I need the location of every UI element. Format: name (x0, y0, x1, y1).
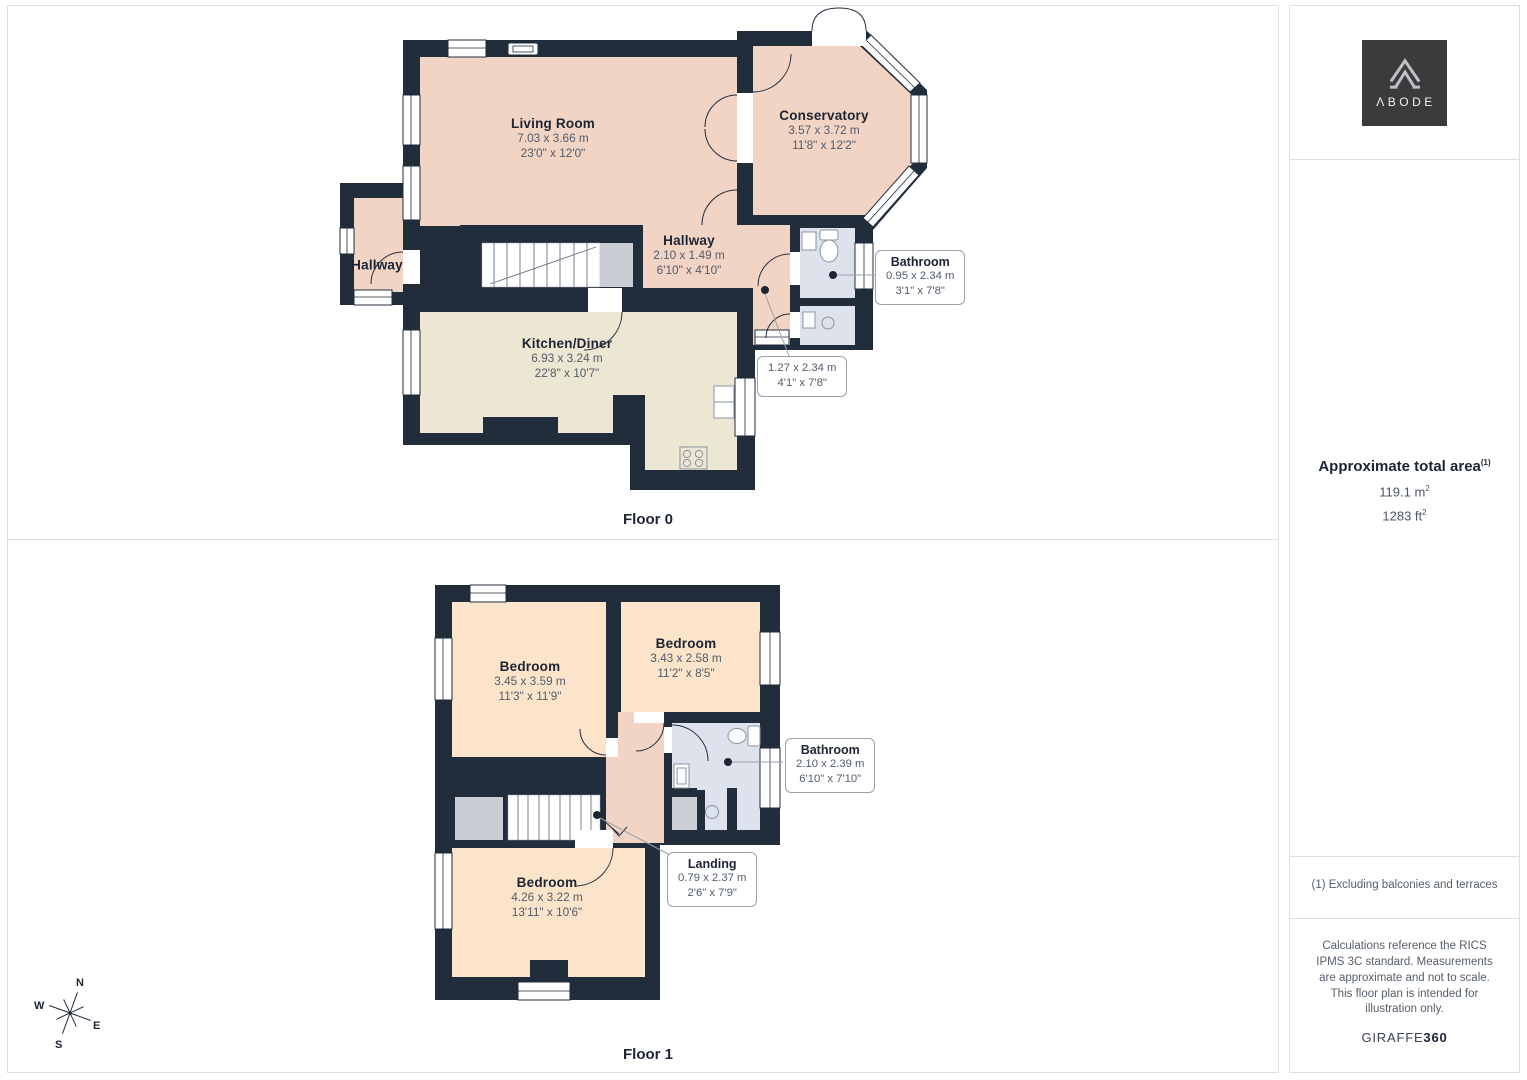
abode-logo-mark-icon (1385, 58, 1425, 90)
floor0-caption: Floor 0 (588, 511, 708, 528)
room-label-hallway-left: Hallway (351, 258, 403, 273)
disclaimer-text: Calculations reference the RICS IPMS 3C … (1310, 939, 1499, 1018)
total-area-metric: 119.1 m2 (1290, 484, 1519, 499)
compass-north-label: N (76, 977, 84, 989)
sidebar-divider-3 (1290, 918, 1519, 919)
room-label-bedroom3: Bedroom 4.26 x 3.22 m 13'11" x 10'6" (511, 875, 582, 921)
abode-logo: ΛBODE (1362, 40, 1447, 126)
sidebar-divider-1 (1290, 159, 1519, 160)
room-label-conservatory: Conservatory 3.57 x 3.72 m 11'8" x 12'2" (779, 108, 868, 154)
callout-bathroom-floor1: Bathroom 2.10 x 2.39 m 6'10" x 7'10" (785, 738, 875, 793)
wc-sink-icon (803, 312, 815, 328)
callout-corridor-floor0: 1.27 x 2.34 m 4'1" x 7'8" (757, 356, 847, 397)
floorplan-page: { "colors": { "wall": "#222d3c", "room_p… (0, 0, 1527, 1080)
room-label-living-room: Living Room 7.03 x 3.66 m 23'0" x 12'0" (511, 116, 595, 162)
compass-west-label: W (34, 1000, 45, 1012)
sidebar-divider-2 (1290, 856, 1519, 857)
compass-east-label: E (93, 1020, 100, 1032)
giraffe360-brand: GIRAFFE360 (1290, 1030, 1519, 1045)
sidebar-panel: ΛBODE Approximate total area(1) 119.1 m2… (1289, 5, 1520, 1073)
sink-icon (802, 232, 816, 250)
callout-bathroom-floor0: Bathroom 0.95 x 2.34 m 3'1" x 7'8" (875, 250, 965, 305)
total-area-imperial: 1283 ft2 (1290, 508, 1519, 523)
floor0-stairs (482, 243, 633, 287)
room-label-bedroom1: Bedroom 3.45 x 3.59 m 11'3" x 11'9" (494, 659, 565, 705)
room-label-hallway: Hallway 2.10 x 1.49 m 6'10" x 4'10" (653, 233, 724, 279)
toilet-icon (748, 726, 760, 746)
room-label-kitchen-diner: Kitchen/Diner 6.93 x 3.24 m 22'8" x 10'7… (522, 336, 612, 382)
room-label-bedroom2: Bedroom 3.43 x 2.58 m 11'2" x 8'5" (650, 636, 721, 682)
total-area-block: Approximate total area(1) 119.1 m2 1283 … (1290, 458, 1519, 524)
compass-icon: N E S W (23, 968, 118, 1058)
floor-separator-line (8, 539, 1278, 540)
entrance-arrow: → (338, 257, 351, 272)
toilet-icon (820, 230, 838, 240)
callout-landing-floor1: Landing 0.79 x 2.37 m 2'6" x 7'9" (667, 852, 757, 907)
compass-south-label: S (55, 1039, 62, 1051)
area-footnote: (1) Excluding balconies and terraces (1300, 879, 1509, 891)
floor1-caption: Floor 1 (588, 1046, 708, 1063)
total-area-title: Approximate total area(1) (1290, 458, 1519, 475)
abode-logo-text: ΛBODE (1373, 95, 1436, 109)
